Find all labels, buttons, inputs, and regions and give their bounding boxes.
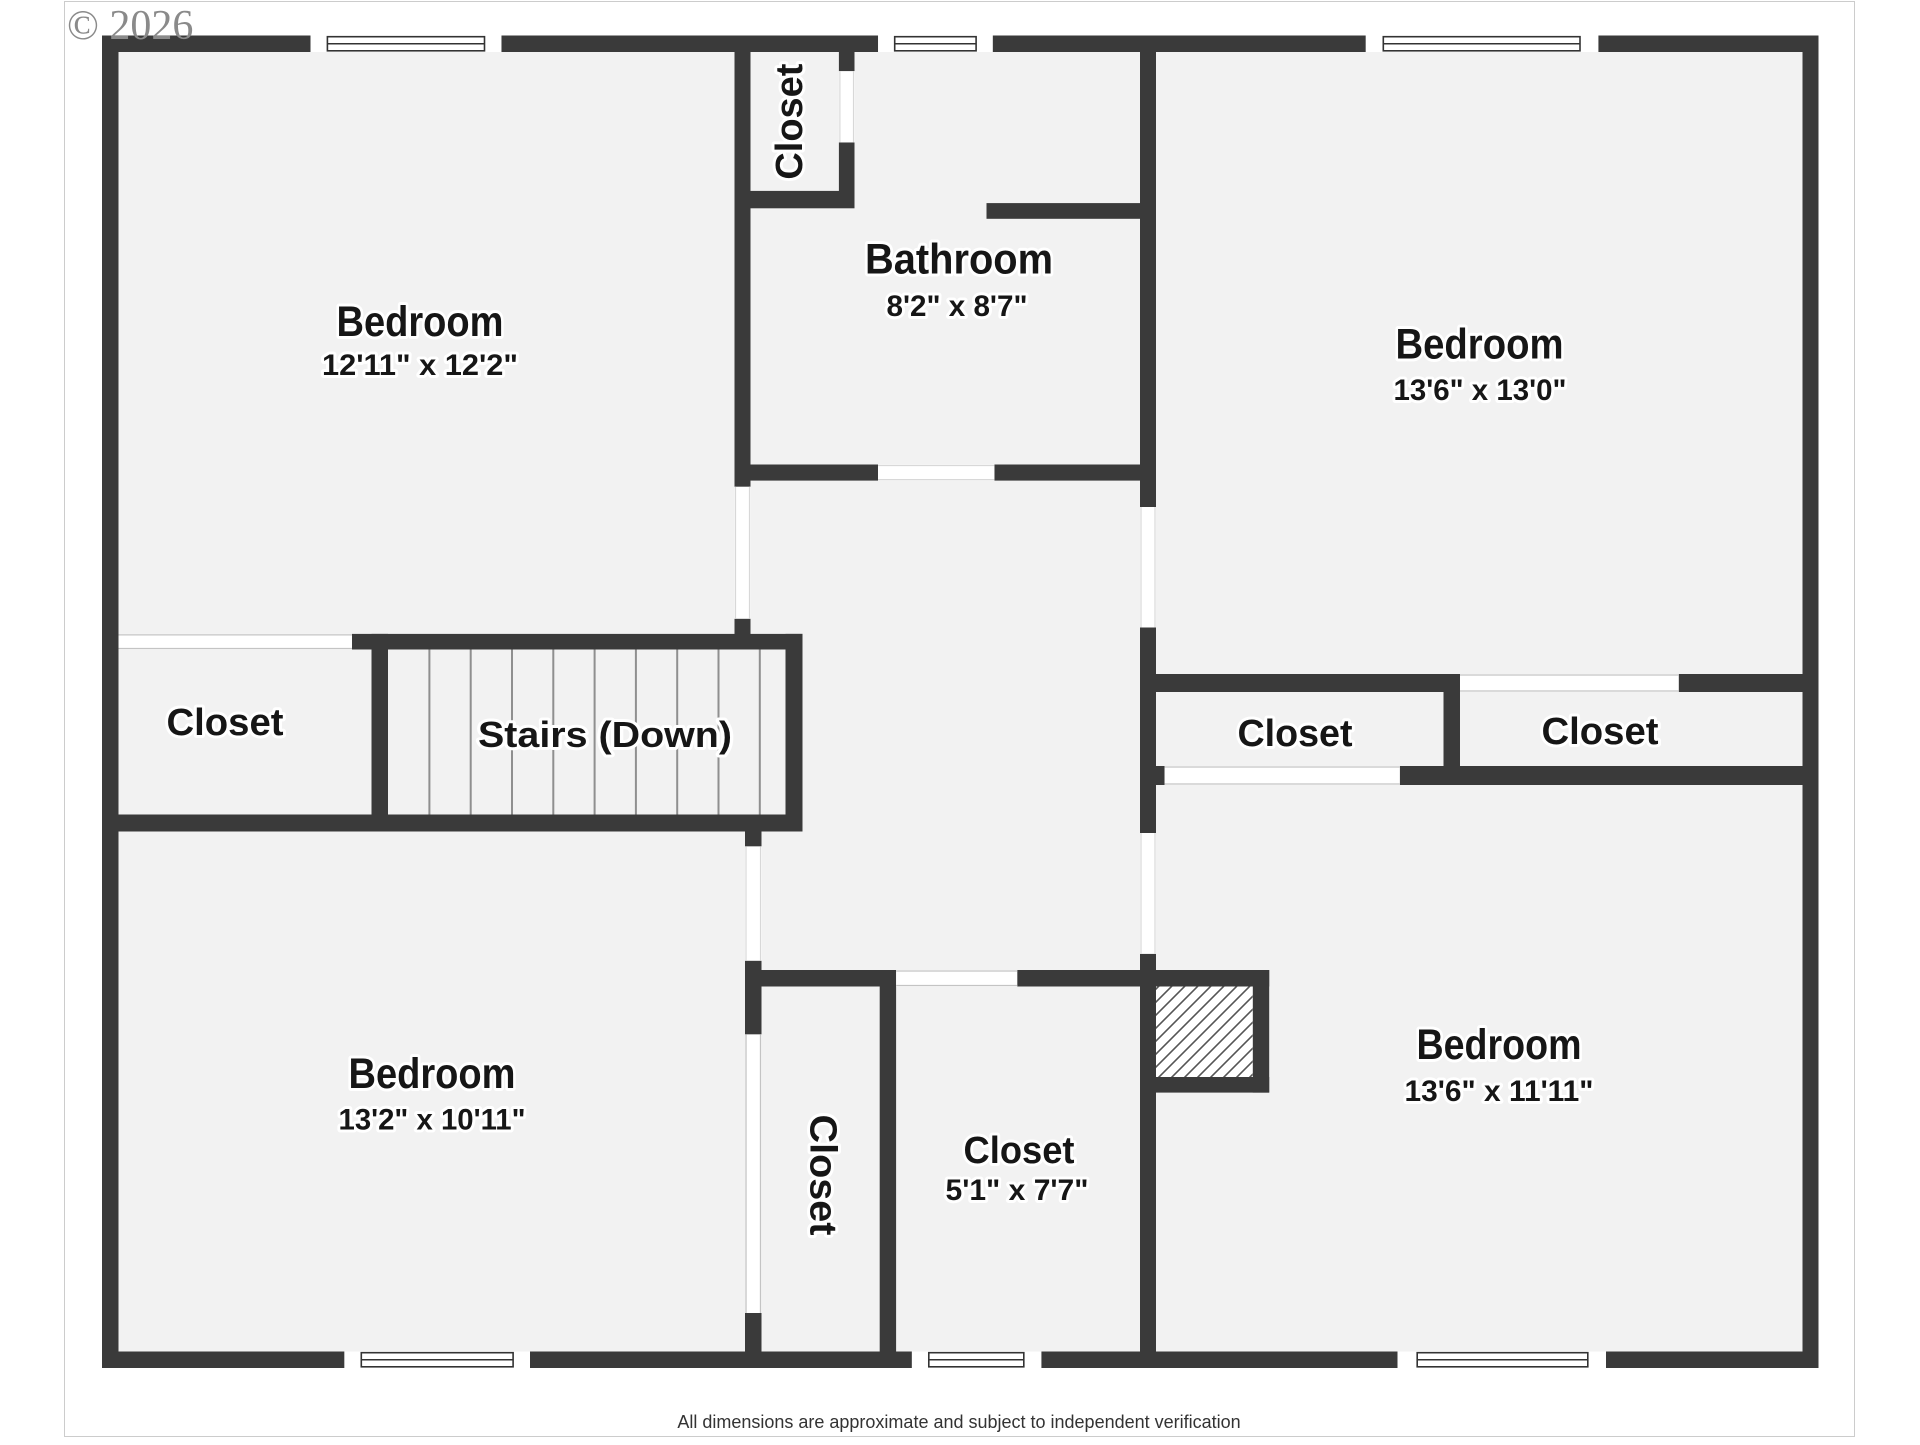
svg-text:13'2" x 10'11": 13'2" x 10'11" [339, 1104, 526, 1137]
svg-text:Closet: Closet [964, 1130, 1075, 1172]
svg-text:Closet: Closet [167, 702, 284, 744]
svg-text:© 2026: © 2026 [67, 3, 193, 49]
svg-text:8'2" x 8'7": 8'2" x 8'7" [887, 290, 1028, 323]
svg-text:Bedroom: Bedroom [1417, 1021, 1582, 1069]
svg-text:5'1" x 7'7": 5'1" x 7'7" [946, 1174, 1089, 1207]
svg-text:Bathroom: Bathroom [865, 236, 1053, 284]
svg-text:13'6" x 13'0": 13'6" x 13'0" [1394, 374, 1567, 407]
svg-text:Closet: Closet [1542, 711, 1659, 753]
svg-text:Closet: Closet [802, 1115, 844, 1236]
svg-text:13'6" x 11'11": 13'6" x 11'11" [1405, 1075, 1594, 1108]
svg-text:Closet: Closet [1238, 713, 1353, 755]
svg-text:Stairs (Down): Stairs (Down) [478, 714, 732, 755]
svg-text:Closet: Closet [769, 63, 811, 179]
svg-text:Bedroom: Bedroom [349, 1050, 516, 1098]
svg-text:Bedroom: Bedroom [337, 298, 504, 346]
svg-text:12'11" x 12'2": 12'11" x 12'2" [322, 349, 518, 382]
svg-text:All dimensions are approximate: All dimensions are approximate and subje… [677, 1412, 1240, 1432]
svg-text:Bedroom: Bedroom [1396, 321, 1564, 369]
